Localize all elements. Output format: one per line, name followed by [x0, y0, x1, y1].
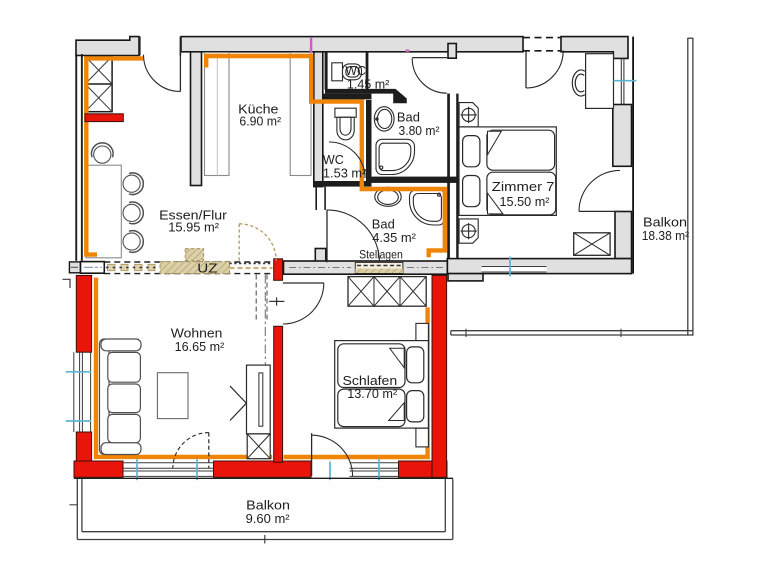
svg-text:Zimmer 7: Zimmer 7	[492, 179, 555, 194]
svg-text:Stellagen: Stellagen	[359, 247, 403, 261]
svg-text:4.35 m²: 4.35 m²	[372, 230, 416, 245]
svg-text:15.95 m²: 15.95 m²	[168, 219, 219, 234]
svg-text:6.90 m²: 6.90 m²	[239, 114, 281, 129]
svg-text:1.45 m²: 1.45 m²	[347, 77, 390, 92]
svg-text:3.80 m²: 3.80 m²	[399, 123, 441, 138]
svg-text:13.70 m²: 13.70 m²	[347, 386, 398, 401]
svg-text:1.53 m²: 1.53 m²	[323, 166, 367, 181]
svg-text:UZ: UZ	[197, 262, 218, 276]
svg-text:16.65 m²: 16.65 m²	[175, 339, 225, 354]
svg-text:15.50 m²: 15.50 m²	[500, 194, 551, 209]
svg-text:18.38 m²: 18.38 m²	[642, 228, 690, 243]
svg-text:9.60 m²: 9.60 m²	[246, 511, 291, 526]
